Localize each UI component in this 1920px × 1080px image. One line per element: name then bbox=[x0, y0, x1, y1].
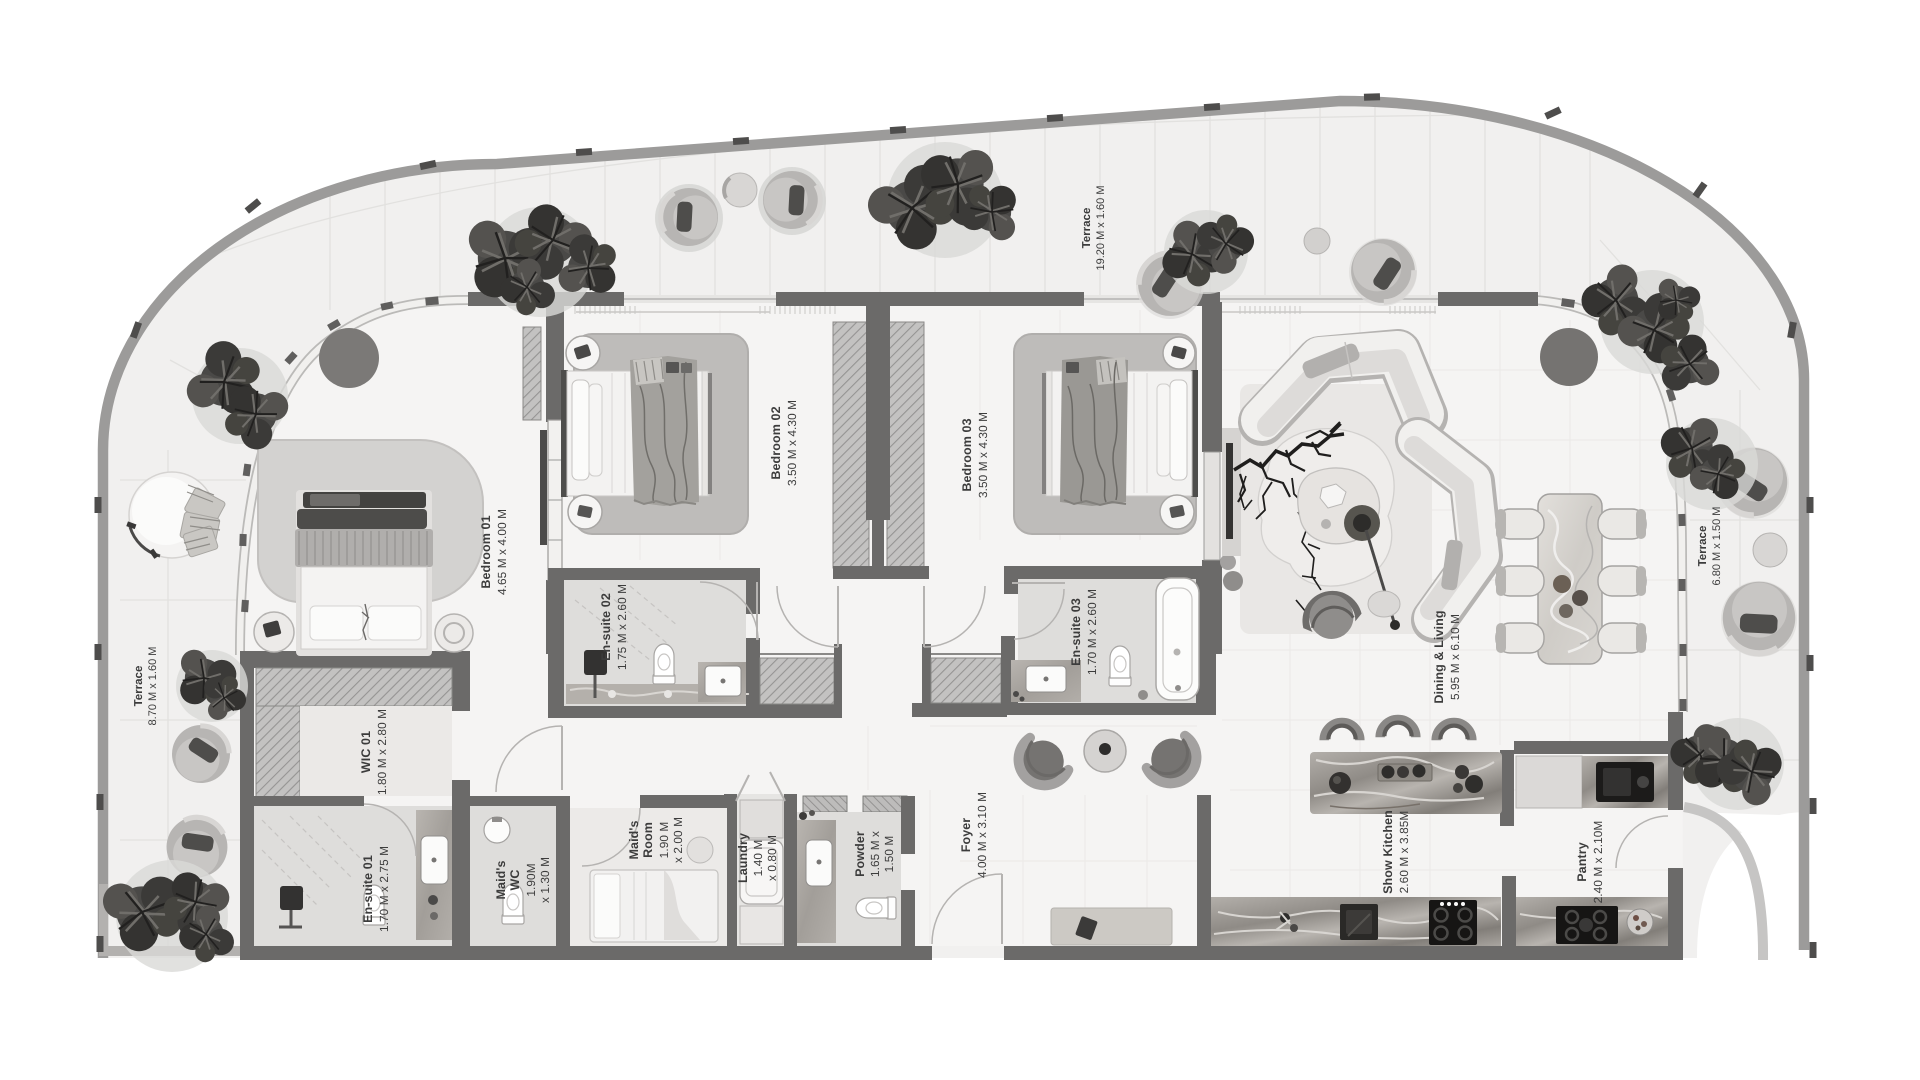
svg-text:Terrace: Terrace bbox=[1081, 208, 1093, 249]
svg-text:En-suite 02: En-suite 02 bbox=[599, 593, 613, 661]
svg-text:4.00 M x 3.10 M: 4.00 M x 3.10 M bbox=[975, 792, 989, 878]
svg-text:1.80 M x 2.80 M: 1.80 M x 2.80 M bbox=[375, 709, 389, 795]
svg-text:3.50 M x 4.30 M: 3.50 M x 4.30 M bbox=[785, 400, 799, 486]
svg-text:Bedroom 01: Bedroom 01 bbox=[479, 515, 493, 588]
svg-text:2.40 M x 2.10M: 2.40 M x 2.10M bbox=[1591, 821, 1605, 904]
svg-text:Terrace: Terrace bbox=[1697, 526, 1709, 567]
svg-text:Maid's: Maid's bbox=[494, 861, 508, 900]
svg-text:1.70 M x 2.75 M: 1.70 M x 2.75 M bbox=[377, 846, 391, 932]
svg-text:Powder: Powder bbox=[853, 831, 867, 877]
svg-text:En-suite 01: En-suite 01 bbox=[361, 855, 375, 923]
svg-text:Pantry: Pantry bbox=[1575, 842, 1589, 882]
svg-text:Show Kitchen: Show Kitchen bbox=[1381, 810, 1395, 894]
svg-text:En-suite 03: En-suite 03 bbox=[1069, 598, 1083, 666]
svg-text:Terrace: Terrace bbox=[133, 666, 145, 707]
svg-text:4.65 M x 4.00 M: 4.65 M x 4.00 M bbox=[495, 509, 509, 595]
svg-text:1.40 M: 1.40 M bbox=[751, 840, 765, 877]
svg-text:WIC 01: WIC 01 bbox=[359, 731, 373, 773]
svg-text:Maid's: Maid's bbox=[627, 821, 641, 860]
svg-text:2.60 M x 3.85M: 2.60 M x 3.85M bbox=[1397, 811, 1411, 894]
svg-text:1.75 M x 2.60 M: 1.75 M x 2.60 M bbox=[615, 584, 629, 670]
svg-text:x 0.80 M: x 0.80 M bbox=[765, 835, 779, 881]
svg-text:WC: WC bbox=[508, 869, 522, 890]
svg-text:1.90 M: 1.90 M bbox=[657, 822, 671, 859]
svg-text:Bedroom 02: Bedroom 02 bbox=[769, 406, 783, 479]
svg-text:Bedroom 03: Bedroom 03 bbox=[960, 418, 974, 491]
svg-text:1.50 M: 1.50 M bbox=[882, 836, 896, 873]
svg-text:Room: Room bbox=[641, 822, 655, 858]
svg-text:1.70 M x 2.60 M: 1.70 M x 2.60 M bbox=[1085, 589, 1099, 675]
svg-text:1.90M: 1.90M bbox=[524, 863, 538, 896]
svg-text:x 2.00 M: x 2.00 M bbox=[671, 817, 685, 863]
svg-text:x 1.30 M: x 1.30 M bbox=[538, 857, 552, 903]
svg-text:Laundry: Laundry bbox=[736, 833, 750, 883]
svg-text:Foyer: Foyer bbox=[959, 818, 973, 853]
svg-text:1.65 M x: 1.65 M x bbox=[868, 831, 882, 877]
svg-text:8.70 M x 1.60 M: 8.70 M x 1.60 M bbox=[147, 647, 159, 726]
svg-text:5.95 M x 6.10 M: 5.95 M x 6.10 M bbox=[1448, 614, 1462, 700]
svg-text:6.80 M x 1.50 M: 6.80 M x 1.50 M bbox=[1711, 507, 1723, 586]
svg-text:19.20 M x 1.60 M: 19.20 M x 1.60 M bbox=[1095, 186, 1107, 271]
svg-text:Dining & Living: Dining & Living bbox=[1432, 610, 1446, 703]
svg-text:3.50 M x 4.30 M: 3.50 M x 4.30 M bbox=[976, 412, 990, 498]
